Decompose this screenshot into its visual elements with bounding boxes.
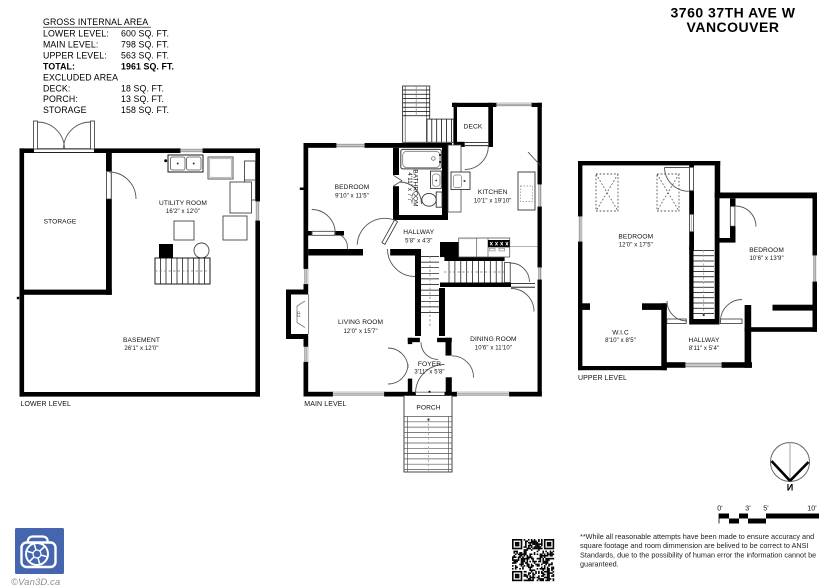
svg-text:10'6" x 11'10": 10'6" x 11'10" xyxy=(475,345,512,351)
svg-text:1961 SQ. FT.: 1961 SQ. FT. xyxy=(121,62,174,72)
svg-text:16'2" x 12'0": 16'2" x 12'0" xyxy=(166,209,200,215)
svg-text:13 SQ. FT.: 13 SQ. FT. xyxy=(121,94,164,104)
svg-text:**While all reasonable attempt: **While all reasonable attempts have bee… xyxy=(580,532,814,541)
svg-text:HALLWAY: HALLWAY xyxy=(689,337,720,344)
svg-text:UPPER LEVEL:: UPPER LEVEL: xyxy=(43,51,107,61)
svg-text:PORCH:: PORCH: xyxy=(43,94,78,104)
svg-text:UPPER LEVEL: UPPER LEVEL xyxy=(578,375,627,382)
svg-text:Standards, due to the possibil: Standards, due to the possibility of hum… xyxy=(580,550,816,559)
svg-text:DECK: DECK xyxy=(464,124,483,131)
svg-text:5': 5' xyxy=(763,506,768,513)
svg-text:0': 0' xyxy=(717,506,722,513)
svg-text:BEDROOM: BEDROOM xyxy=(618,234,653,241)
svg-text:LOWER LEVEL: LOWER LEVEL xyxy=(21,401,72,408)
svg-text:3': 3' xyxy=(745,506,750,513)
svg-text:FOYER: FOYER xyxy=(418,361,441,368)
svg-text:VANCOUVER: VANCOUVER xyxy=(687,19,780,35)
svg-text:563 SQ. FT.: 563 SQ. FT. xyxy=(121,51,169,61)
svg-text:LOWER LEVEL:: LOWER LEVEL: xyxy=(43,29,109,39)
svg-text:W.I.C: W.I.C xyxy=(612,330,629,337)
svg-text:BEDROOM: BEDROOM xyxy=(335,184,370,191)
svg-text:N: N xyxy=(787,483,794,493)
svg-text:KITCHEN: KITCHEN xyxy=(478,189,508,196)
svg-text:798 SQ. FT.: 798 SQ. FT. xyxy=(121,40,169,50)
svg-text:8'11" x 5'4": 8'11" x 5'4" xyxy=(689,346,719,352)
svg-text:LIVING ROOM: LIVING ROOM xyxy=(338,319,383,326)
svg-text:12'0" x 17'5": 12'0" x 17'5" xyxy=(619,243,653,249)
svg-text:3'11" x 5'8": 3'11" x 5'8" xyxy=(414,370,444,376)
svg-text:8'10" x 8'5": 8'10" x 8'5" xyxy=(605,338,636,344)
svg-text:guaranteed.: guaranteed. xyxy=(580,560,619,569)
svg-text:©Van3D.ca: ©Van3D.ca xyxy=(11,577,60,588)
svg-text:PORCH: PORCH xyxy=(416,405,440,412)
svg-text:18 SQ. FT.: 18 SQ. FT. xyxy=(121,84,164,94)
svg-text:STORAGE: STORAGE xyxy=(44,219,77,226)
svg-text:158 SQ. FT.: 158 SQ. FT. xyxy=(121,105,169,115)
svg-text:10': 10' xyxy=(807,506,816,513)
svg-text:BASEMENT: BASEMENT xyxy=(123,337,160,344)
svg-text:EXCLUDED AREA: EXCLUDED AREA xyxy=(43,73,118,83)
svg-text:MAIN LEVEL: MAIN LEVEL xyxy=(304,401,346,408)
svg-text:MAIN LEVEL:: MAIN LEVEL: xyxy=(43,40,98,50)
svg-text:GROSS INTERNAL AREA: GROSS INTERNAL AREA xyxy=(43,17,148,27)
svg-text:600 SQ. FT.: 600 SQ. FT. xyxy=(121,29,169,39)
svg-text:9'10" x 11'5": 9'10" x 11'5" xyxy=(335,194,369,200)
svg-text:26'1" x 12'0": 26'1" x 12'0" xyxy=(124,346,158,352)
svg-text:12'0" x 15'7": 12'0" x 15'7" xyxy=(343,329,377,335)
svg-text:10'1" x 19'10": 10'1" x 19'10" xyxy=(474,198,512,204)
svg-text:DECK:: DECK: xyxy=(43,84,70,94)
svg-text:square footage and room dimmen: square footage and room dimmension are b… xyxy=(580,541,809,550)
svg-text:BEDROOM: BEDROOM xyxy=(749,247,784,254)
svg-text:FP: FP xyxy=(297,311,302,317)
svg-text:10'6" x 13'9": 10'6" x 13'9" xyxy=(749,256,783,262)
svg-text:TOTAL:: TOTAL: xyxy=(43,62,75,72)
svg-text:STORAGE: STORAGE xyxy=(43,105,87,115)
svg-text:UTILITY ROOM: UTILITY ROOM xyxy=(159,200,207,207)
svg-text:5'8" x 4'3": 5'8" x 4'3" xyxy=(405,238,432,244)
svg-text:4'11" x 7'7": 4'11" x 7'7" xyxy=(406,172,413,203)
svg-text:HALLWAY: HALLWAY xyxy=(403,229,434,236)
svg-text:DINING ROOM: DINING ROOM xyxy=(470,336,517,343)
